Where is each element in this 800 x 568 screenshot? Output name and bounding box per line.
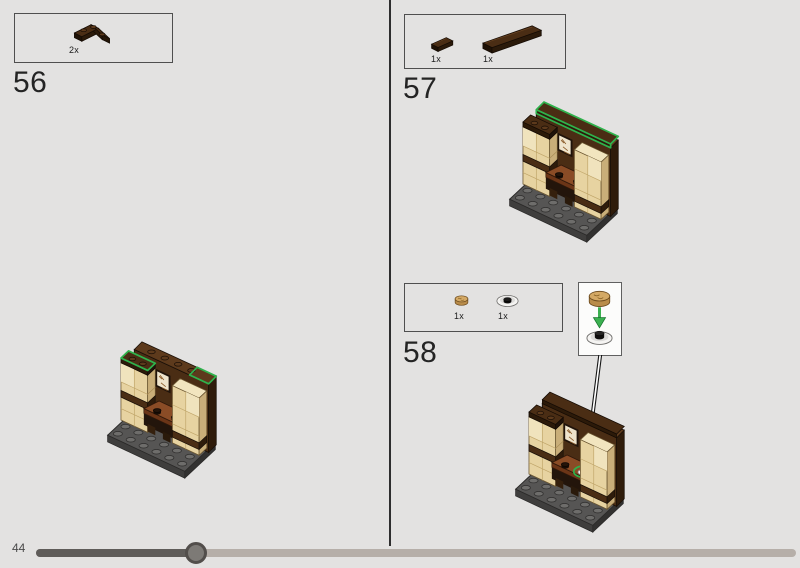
- part-count: 1x: [454, 311, 464, 321]
- parts-box-step-58: 1x 1x: [404, 283, 563, 332]
- parts-box-step-57: 1x 1x: [404, 14, 566, 69]
- parts-box-step-56: 2x: [14, 13, 173, 63]
- step-number-57: 57: [403, 72, 437, 106]
- step-number-58: 58: [403, 336, 437, 370]
- part-count: 1x: [431, 54, 441, 64]
- tile-1x2-icon: [429, 36, 457, 54]
- part-count: 1x: [498, 311, 508, 321]
- step-number-56: 56: [13, 66, 47, 100]
- model-step-56: [100, 336, 262, 484]
- bread-tile-icon: [453, 294, 470, 308]
- white-dish-icon: [496, 293, 519, 308]
- model-step-57: [502, 100, 664, 248]
- tile-1x6-icon: [481, 23, 545, 54]
- corner-plate-2x2-icon: [67, 19, 117, 47]
- model-step-58: [508, 390, 670, 538]
- progress-handle[interactable]: [185, 542, 207, 564]
- assembly-callout-graphic: [579, 283, 620, 354]
- part-count: 1x: [483, 54, 493, 64]
- instruction-page: 2x 56 1x 1x 57 1x: [0, 0, 800, 568]
- column-divider: [389, 0, 391, 546]
- part-count: 2x: [69, 45, 79, 55]
- assembly-callout-box: [578, 282, 622, 356]
- progress-fill: [36, 549, 196, 557]
- page-number: 44: [12, 541, 25, 555]
